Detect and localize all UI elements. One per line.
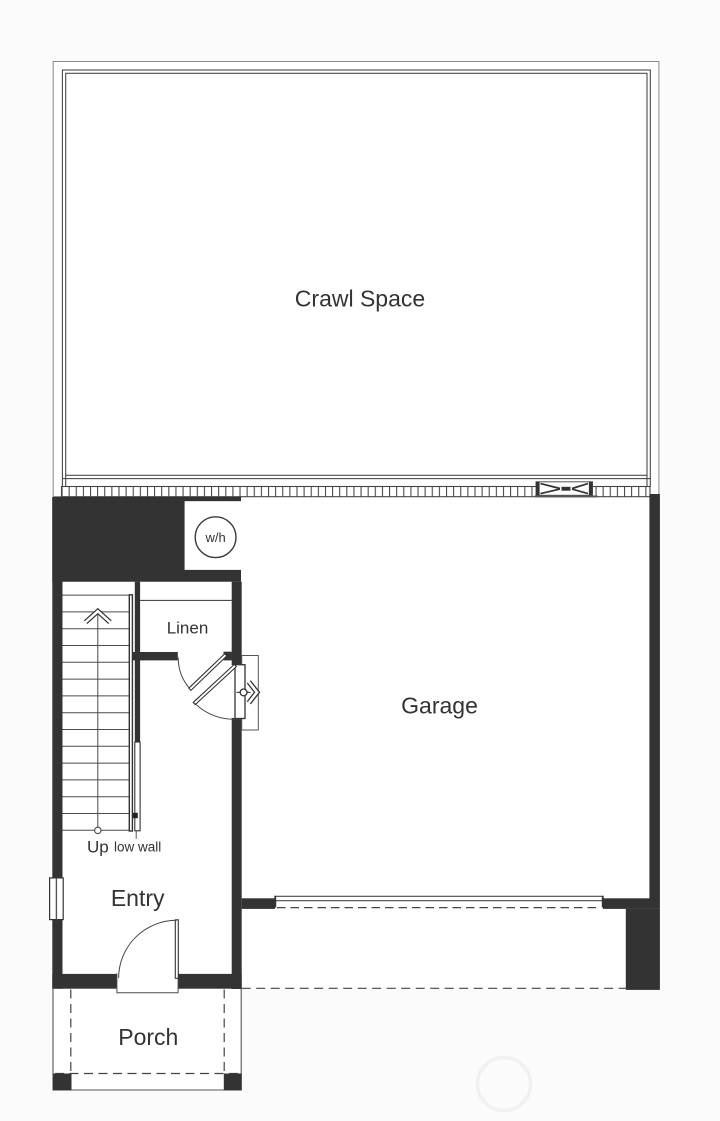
svg-text:Garage: Garage xyxy=(401,692,478,718)
svg-text:Up: Up xyxy=(87,838,109,857)
svg-text:Linen: Linen xyxy=(167,619,209,638)
svg-text:Porch: Porch xyxy=(118,1024,178,1050)
svg-text:Crawl Space: Crawl Space xyxy=(295,286,425,312)
svg-text:low wall: low wall xyxy=(114,840,161,855)
svg-text:Entry: Entry xyxy=(111,885,165,911)
svg-text:w/h: w/h xyxy=(204,530,225,545)
